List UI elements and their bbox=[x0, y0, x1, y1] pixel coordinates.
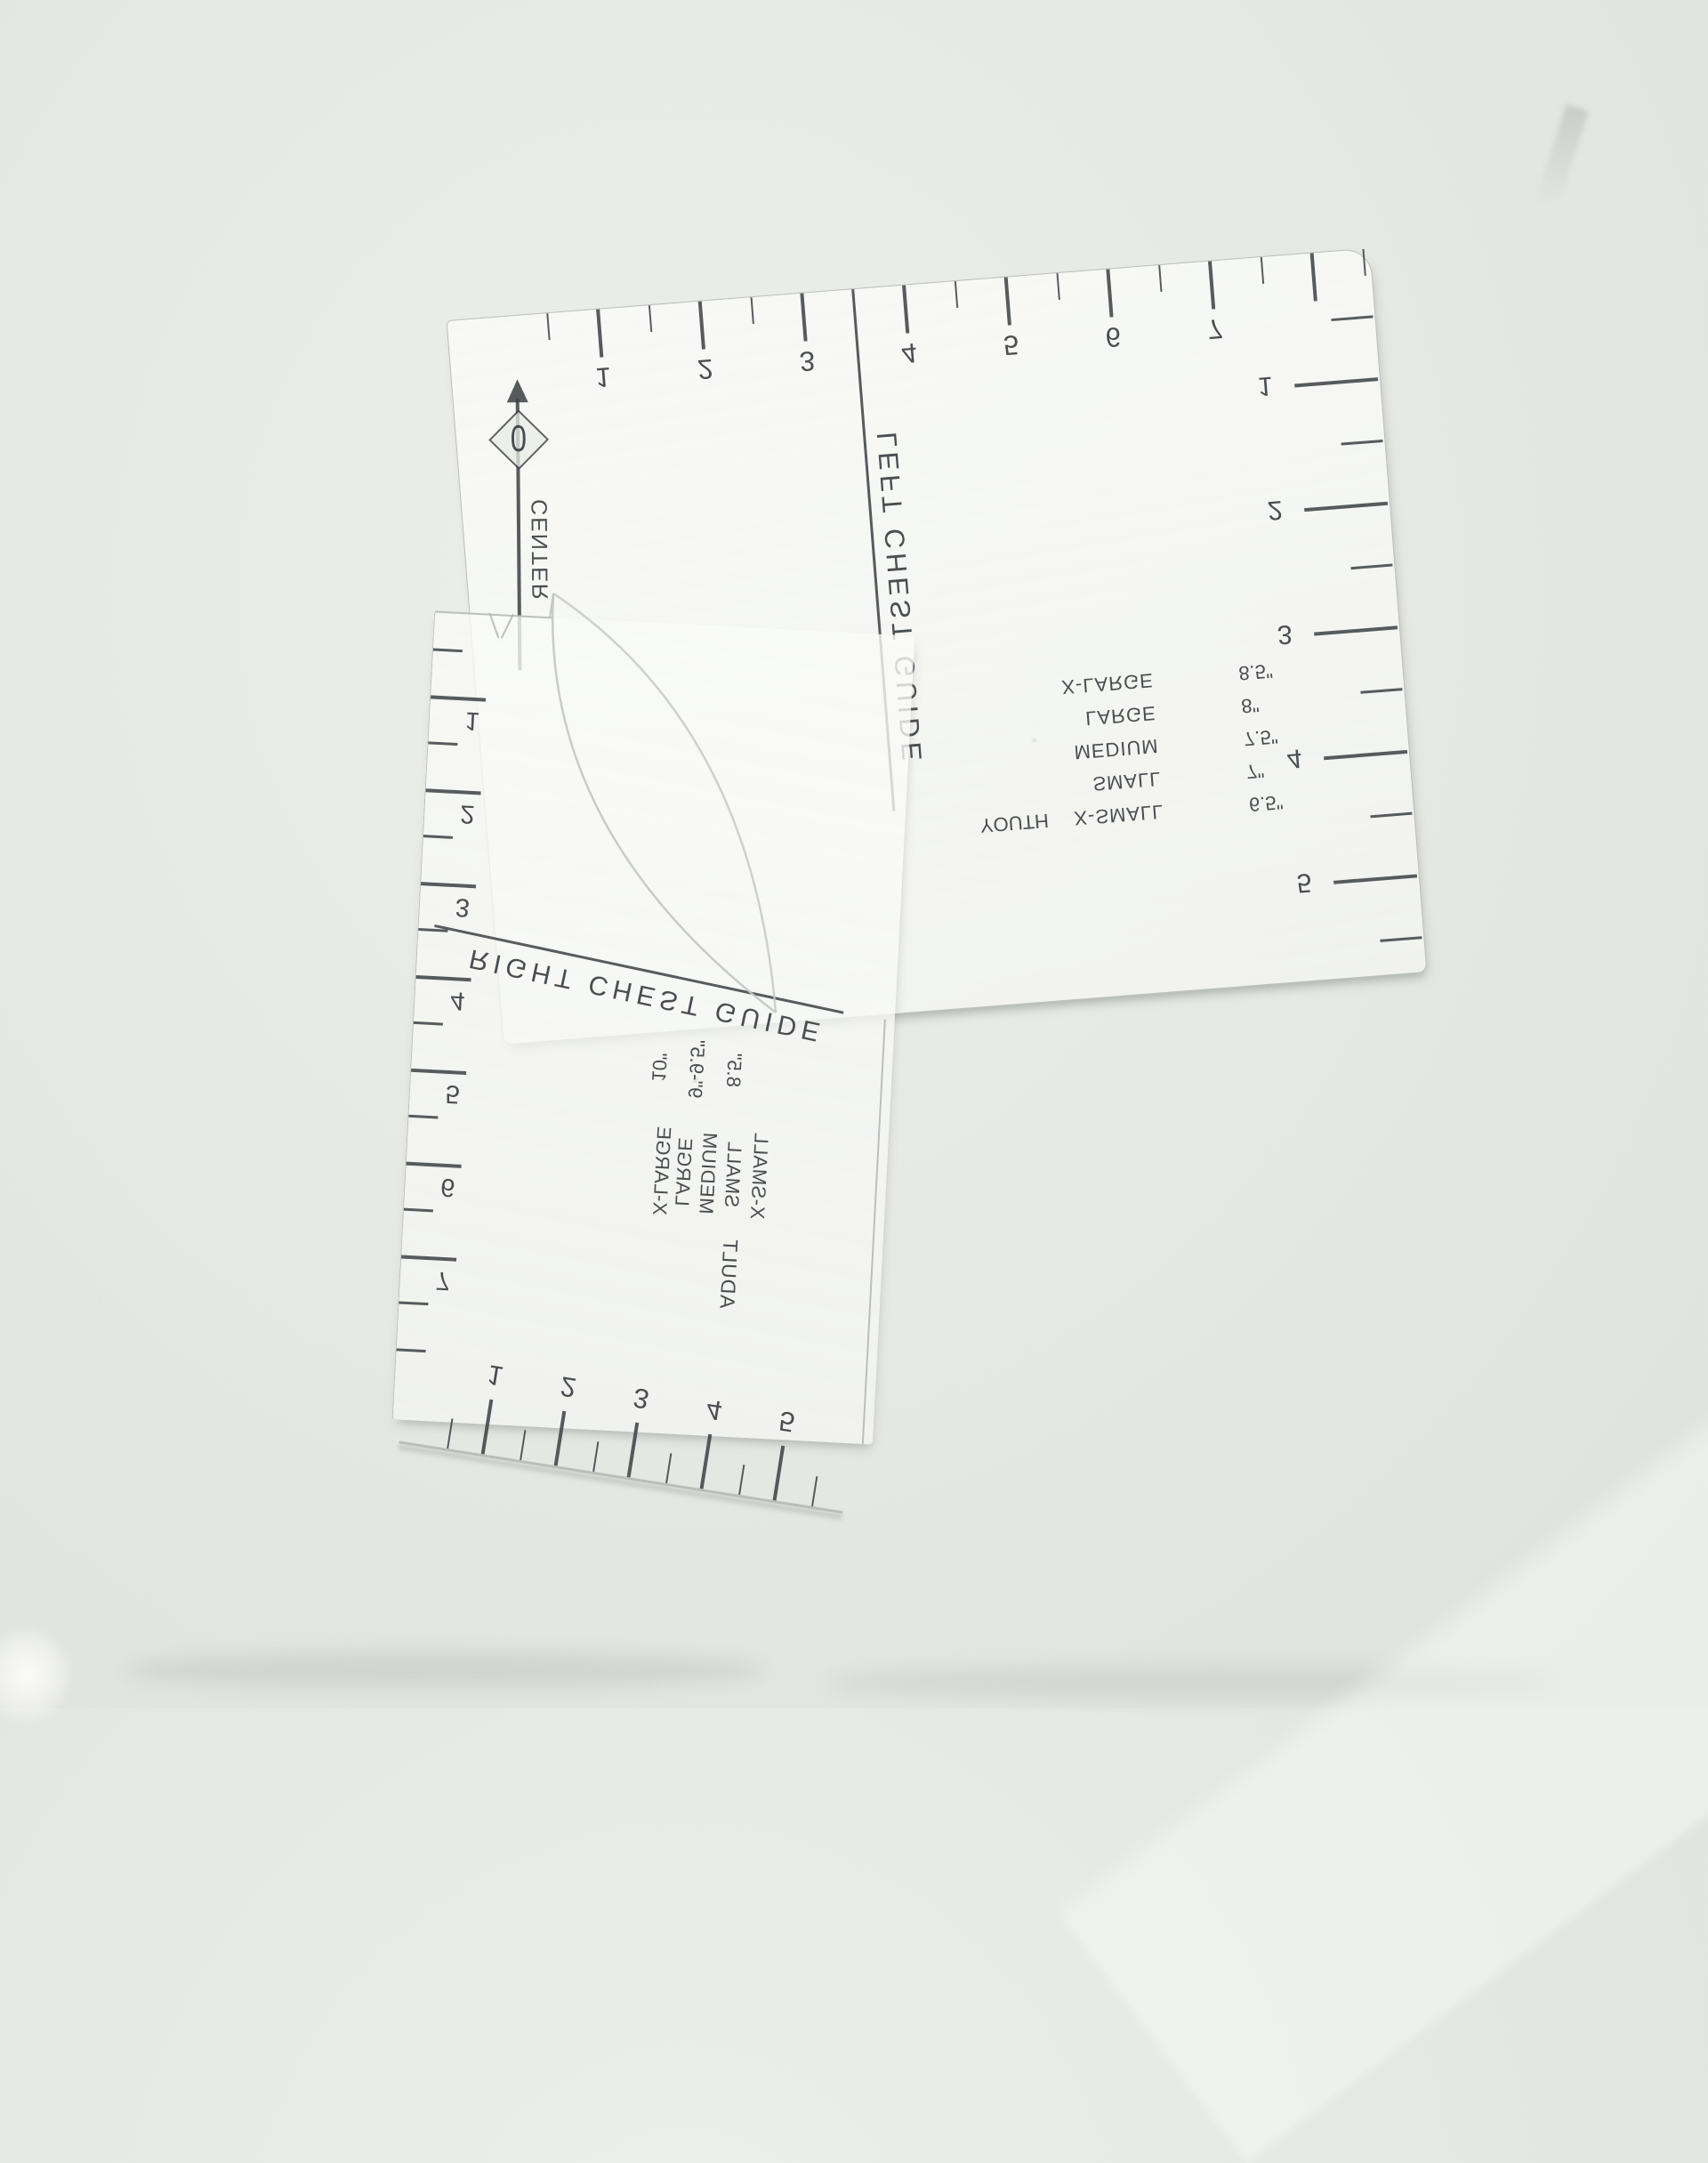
right-scale-minor-tick bbox=[1341, 440, 1382, 445]
right-scale-major-tick bbox=[1314, 625, 1398, 635]
left-scale-major-tick bbox=[431, 695, 486, 701]
top-scale-major-tick bbox=[1106, 269, 1113, 317]
right-scale-major-tick bbox=[1324, 750, 1407, 760]
left-scale-major-tick bbox=[421, 882, 476, 888]
left-scale-number: 3 bbox=[442, 890, 483, 922]
left-scale-minor-tick bbox=[433, 648, 463, 651]
left-scale-minor-tick bbox=[414, 1021, 443, 1025]
left-scale-number: 7 bbox=[423, 1263, 463, 1295]
right-chest-guide-ruler: RIGHT CHEST GUIDE 10"9"-9.5"8.5"X-LARGEL… bbox=[392, 610, 915, 1444]
right-scale-number: 5 bbox=[1283, 864, 1326, 900]
top-scale-major-tick bbox=[596, 310, 603, 358]
right-scale-number: 1 bbox=[1244, 367, 1287, 403]
right-scale-number: 4 bbox=[1273, 739, 1317, 776]
left-scale-number: 2 bbox=[447, 797, 487, 829]
top-scale-major-tick bbox=[800, 294, 807, 342]
top-scale-minor-tick bbox=[1057, 273, 1060, 300]
left-scale-minor-tick bbox=[418, 928, 447, 932]
bottom-scale-minor-tick bbox=[592, 1441, 599, 1472]
right-scale-minor-tick bbox=[1331, 315, 1373, 320]
left-scale-minor-tick bbox=[408, 1115, 438, 1118]
left-scale-major-tick bbox=[416, 975, 471, 981]
left-scale-minor-tick bbox=[428, 741, 457, 745]
left-scale-major-tick bbox=[401, 1255, 456, 1262]
right-scale-number: 2 bbox=[1253, 491, 1297, 528]
top-scale-number: 3 bbox=[788, 343, 826, 378]
top-scale-minor-tick bbox=[546, 313, 550, 340]
left-scale-number: 1 bbox=[452, 704, 493, 736]
right-scale-minor-tick bbox=[1350, 564, 1392, 569]
top-scale-major-tick bbox=[902, 285, 909, 333]
right-scale-major-tick bbox=[1333, 874, 1417, 884]
surface-highlight-corner bbox=[0, 1630, 68, 1719]
top-scale-minor-tick bbox=[751, 297, 754, 324]
left-scale-minor-tick bbox=[397, 1348, 426, 1352]
top-scale-major-tick bbox=[698, 302, 705, 350]
right-scale-major-tick bbox=[1294, 377, 1378, 387]
left-scale-number: 4 bbox=[437, 983, 478, 1015]
fabric-shadow-1 bbox=[125, 1651, 765, 1689]
top-scale-number: 6 bbox=[1094, 319, 1132, 354]
bottom-scale-minor-tick bbox=[447, 1418, 453, 1449]
surface-fold-light bbox=[872, 916, 1708, 2163]
bottom-scale-minor-tick bbox=[811, 1476, 818, 1506]
top-scale-number: 5 bbox=[992, 327, 1030, 362]
right-scale-minor-tick bbox=[1380, 936, 1422, 941]
top-scale-minor-tick bbox=[649, 305, 652, 332]
left-scale-number: 5 bbox=[432, 1077, 473, 1109]
surface-smudge bbox=[1534, 104, 1588, 211]
top-scale-major-tick bbox=[1310, 253, 1317, 301]
right-scale-number: 3 bbox=[1263, 616, 1307, 652]
top-scale-minor-tick bbox=[1158, 265, 1162, 292]
right-scale-major-tick bbox=[1304, 502, 1388, 512]
left-scale-minor-tick bbox=[399, 1301, 428, 1304]
left-scale-major-tick bbox=[426, 788, 481, 795]
bottom-scale-major-tick bbox=[773, 1446, 786, 1501]
top-scale-number: 1 bbox=[584, 359, 623, 394]
top-scale-minor-tick bbox=[1261, 257, 1264, 284]
top-scale-minor-tick bbox=[1362, 249, 1366, 276]
top-scale-major-tick bbox=[1208, 261, 1215, 309]
top-scale-minor-tick bbox=[955, 281, 958, 308]
bottom-scale-minor-tick bbox=[738, 1465, 745, 1495]
small-ruler-left-scale: 1234567 bbox=[393, 611, 915, 1445]
left-scale-number: 6 bbox=[428, 1170, 469, 1202]
left-scale-minor-tick bbox=[423, 835, 453, 838]
bottom-scale-major-tick bbox=[700, 1434, 713, 1489]
photo-of-tshirt-ruler-guides: { "photo": { "description": "Two transpa… bbox=[0, 0, 1708, 1708]
right-scale-minor-tick bbox=[1370, 812, 1412, 818]
left-scale-major-tick bbox=[407, 1162, 462, 1168]
bottom-scale-minor-tick bbox=[665, 1453, 672, 1483]
top-scale-number: 2 bbox=[686, 351, 724, 386]
top-scale-major-tick bbox=[1004, 277, 1011, 325]
left-scale-major-tick bbox=[411, 1069, 466, 1075]
right-scale-minor-tick bbox=[1360, 688, 1402, 693]
left-scale-minor-tick bbox=[404, 1208, 433, 1212]
top-scale-number: 7 bbox=[1196, 311, 1235, 346]
bottom-scale-minor-tick bbox=[520, 1430, 526, 1460]
top-scale-number: 4 bbox=[890, 335, 929, 370]
